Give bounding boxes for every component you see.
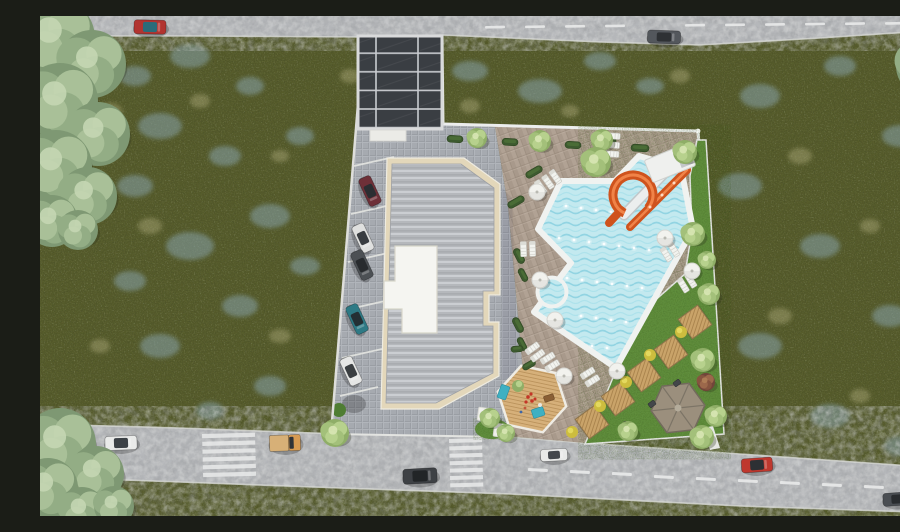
- pale-grass-patch: [269, 329, 291, 343]
- pool-light: [595, 317, 598, 320]
- lane-dash: [485, 26, 505, 29]
- deck-bush-highlight: [516, 381, 522, 387]
- pool-light: [566, 277, 569, 280]
- aerial-site-render: Aerial 3D render — residential site plan…: [40, 16, 900, 516]
- lane-dash: [765, 23, 785, 26]
- flower-patch: [170, 44, 210, 68]
- flower-patch: [738, 333, 782, 359]
- flower-patch: [452, 61, 488, 81]
- flower-patch: [636, 78, 664, 94]
- lane-dash: [805, 23, 825, 26]
- parasol-tip: [664, 237, 667, 240]
- pale-grass-patch: [271, 150, 289, 162]
- slide-light: [661, 194, 664, 197]
- pool-light: [558, 237, 561, 240]
- pale-grass-patch: [460, 99, 480, 113]
- hedge: [565, 141, 581, 149]
- carport-ramp: [370, 130, 406, 141]
- figure: [520, 411, 523, 414]
- parasol-tip: [536, 191, 539, 194]
- parasol-tip: [539, 279, 542, 282]
- flower-patch: [140, 334, 180, 358]
- lane-dash: [885, 22, 900, 25]
- flower-patch: [584, 52, 616, 70]
- pool-light: [606, 347, 609, 350]
- flower-patch: [286, 127, 314, 145]
- pale-grass-patch: [561, 105, 579, 117]
- figure: [524, 407, 527, 410]
- flower-patch: [236, 77, 264, 95]
- pool-light: [573, 239, 576, 242]
- render-canvas: Aerial 3D render — residential site plan…: [40, 16, 900, 516]
- flower-patch: [196, 402, 224, 420]
- gazebo-finial: [675, 405, 682, 412]
- flower-patch: [800, 234, 840, 258]
- pool-light: [610, 319, 613, 322]
- hedge: [502, 138, 518, 146]
- hedge: [631, 144, 649, 152]
- flower-patch: [518, 79, 562, 103]
- lounger-pillow: [520, 242, 526, 246]
- parasol-tip: [563, 375, 566, 378]
- pool-light: [626, 285, 629, 288]
- pool-light: [580, 315, 583, 318]
- pale-grass-patch: [768, 308, 792, 324]
- pool-light: [596, 281, 599, 284]
- flower-patch: [254, 376, 286, 396]
- parasol-tip: [691, 270, 694, 273]
- fence-corner-post: [696, 129, 701, 134]
- pool-light: [610, 211, 613, 214]
- flower-patch: [740, 84, 780, 108]
- pool-light: [641, 287, 644, 290]
- yellow-bush-highlight: [596, 402, 602, 408]
- lane-dash: [605, 24, 625, 27]
- pale-grass-patch: [190, 94, 210, 108]
- flower-patch: [810, 404, 850, 428]
- pool-light: [625, 321, 628, 324]
- pool-light: [603, 243, 606, 246]
- flower-patch: [138, 113, 182, 139]
- lane-dash: [845, 22, 865, 25]
- flower-patch: [114, 271, 146, 291]
- yellow-bush-highlight: [568, 428, 574, 434]
- pool-light: [595, 209, 598, 212]
- flower-patch: [166, 232, 214, 260]
- lane-dash: [565, 25, 585, 28]
- pale-grass-patch: [138, 218, 162, 234]
- flower-patch: [824, 56, 856, 76]
- flower-patch: [718, 173, 762, 199]
- solar-carport: [358, 36, 442, 129]
- lane-dash: [725, 23, 745, 26]
- yellow-bush-highlight: [677, 328, 683, 334]
- pool-light: [591, 345, 594, 348]
- pool-light: [588, 241, 591, 244]
- slide-light: [649, 206, 652, 209]
- slide-light: [673, 182, 676, 185]
- pool-light: [611, 283, 614, 286]
- flower-patch: [209, 146, 241, 166]
- pool-light: [565, 205, 568, 208]
- pale-grass-patch: [670, 69, 690, 83]
- lane-dash: [525, 25, 545, 28]
- pool-light: [581, 279, 584, 282]
- pale-grass-patch: [788, 148, 812, 164]
- pool-light: [648, 249, 651, 252]
- pool-light: [633, 247, 636, 250]
- hedge: [447, 135, 463, 143]
- pool-light: [580, 207, 583, 210]
- yellow-bush-highlight: [646, 351, 652, 357]
- flower-patch: [117, 175, 153, 197]
- hedge: [511, 345, 523, 352]
- lane-dash: [685, 24, 705, 27]
- pale-grass-patch: [860, 219, 880, 233]
- pale-grass-patch: [850, 389, 870, 403]
- pool-light: [618, 245, 621, 248]
- flower-patch: [250, 204, 290, 228]
- flower-patch: [290, 257, 320, 275]
- deck-table: [538, 403, 542, 407]
- parasol-tip: [616, 370, 619, 373]
- lounger-pillow: [529, 241, 535, 245]
- pale-grass-patch: [90, 339, 110, 353]
- parasol-tip: [554, 319, 557, 322]
- flower-patch: [222, 295, 258, 317]
